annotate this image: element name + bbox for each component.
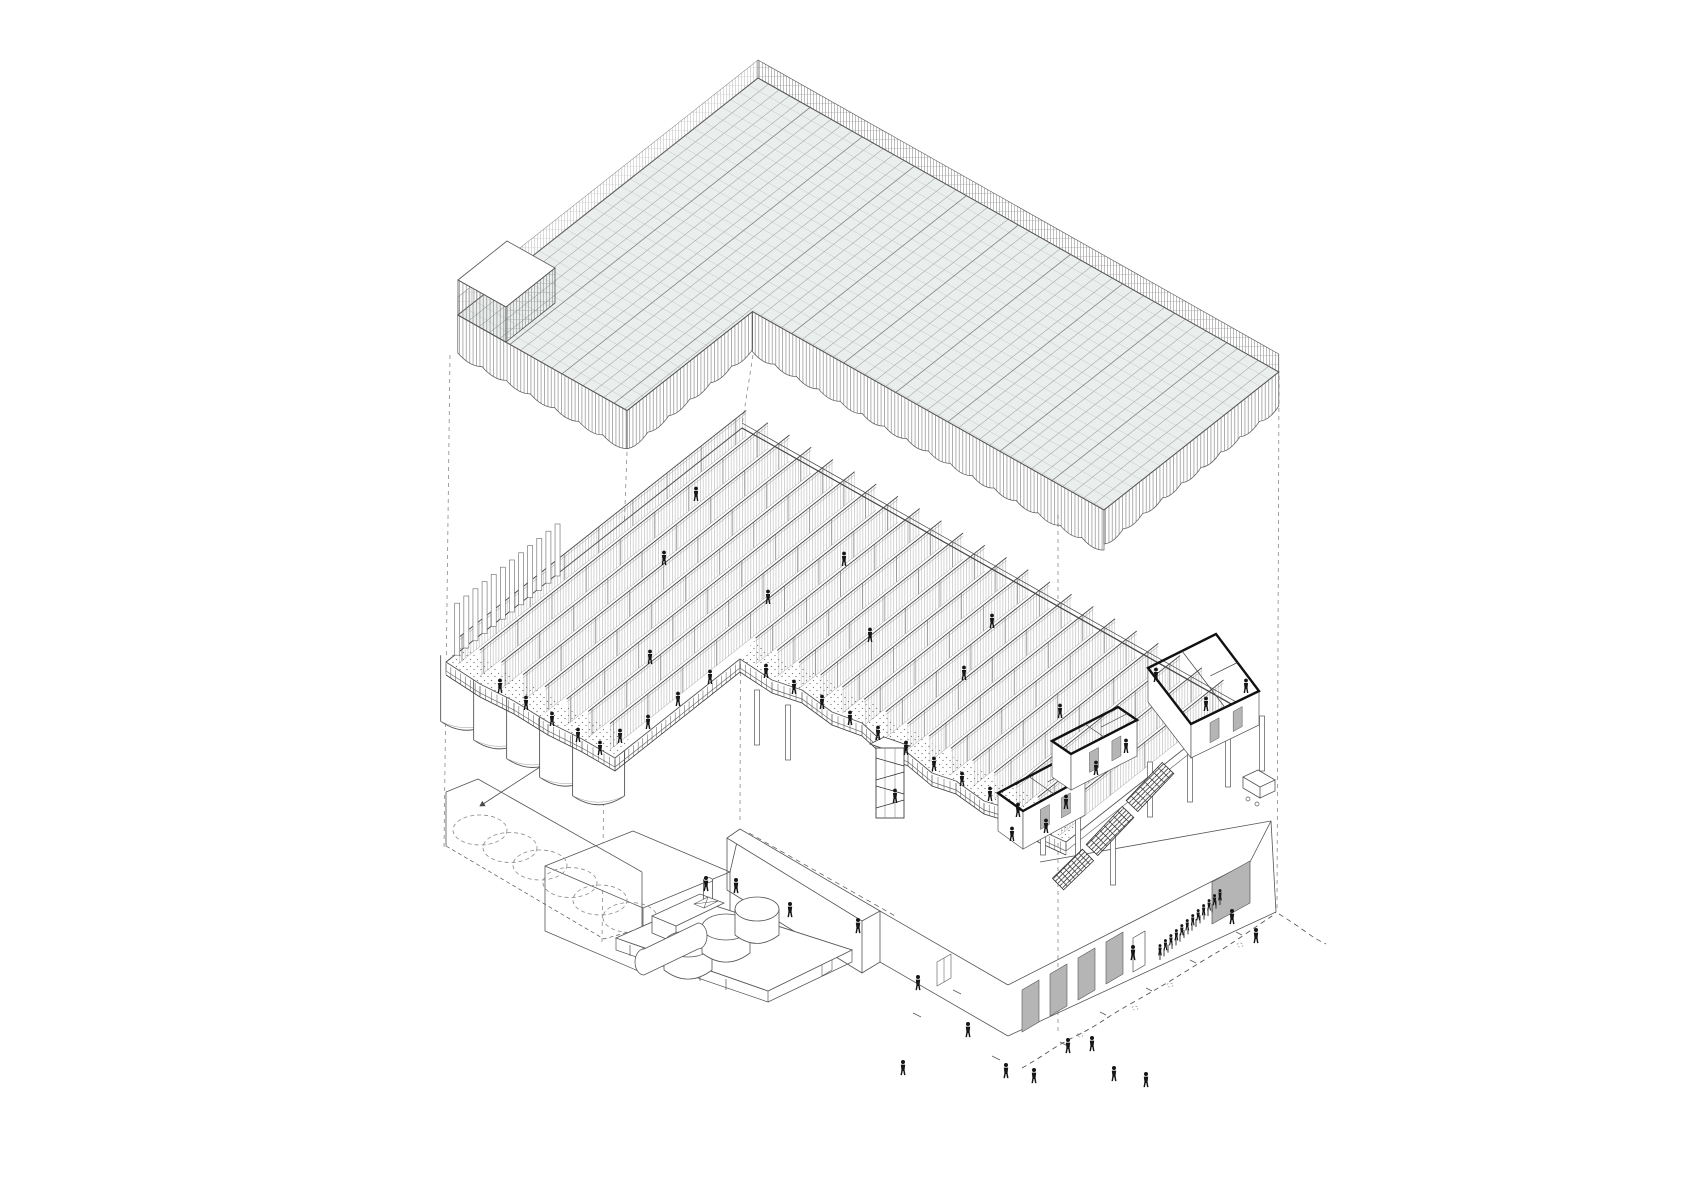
tall-slat (555, 524, 560, 576)
tall-slat (528, 546, 533, 598)
projection-dashed-line (444, 355, 450, 848)
projection-dashed-line (1277, 376, 1279, 908)
exploded-axonometric-svg (0, 0, 1684, 1191)
base-building-edge (1279, 914, 1326, 944)
gridshell-canopy-group (458, 60, 1279, 550)
storage-tank-top (735, 897, 779, 921)
truck (1243, 770, 1275, 798)
base-building-edge (913, 990, 1000, 1060)
person-figure (965, 1022, 970, 1037)
person-figure (915, 975, 920, 990)
person-figure (1111, 1066, 1116, 1081)
person-figure (1143, 1072, 1148, 1087)
tall-slat (455, 603, 460, 655)
gray-door-panel (1078, 948, 1095, 1000)
ground-mark (1167, 983, 1173, 987)
silo-footprint-dashed-circle (483, 833, 537, 863)
gray-door-panel (1050, 964, 1067, 1016)
person-figure (792, 680, 797, 694)
tall-slat (473, 589, 478, 641)
slender-column (1260, 716, 1265, 771)
gray-door-panel (1106, 932, 1123, 984)
base-building-edge (1008, 862, 1250, 985)
tall-slat (491, 574, 496, 626)
person-figure (855, 918, 860, 933)
person-figure (1229, 909, 1234, 924)
silo-footprint-dashed-circle (453, 815, 507, 845)
tall-slat (519, 553, 524, 605)
truck-wheel (1246, 797, 1250, 801)
truck-wheel (1255, 802, 1259, 806)
person-figure (703, 876, 708, 891)
person-figure (900, 1060, 905, 1075)
tall-slat (509, 560, 514, 612)
ground-mark (1237, 943, 1243, 947)
tall-slat (537, 538, 542, 590)
person-figure (787, 902, 792, 917)
base-building-edge (1008, 912, 1276, 1036)
person-figure (1164, 939, 1168, 950)
person-figure (1191, 914, 1195, 925)
person-figure (904, 741, 909, 755)
person-figure (733, 878, 738, 893)
person-figure (1089, 1036, 1094, 1051)
gray-door-panel (1022, 980, 1039, 1032)
person-figure (1003, 1063, 1008, 1078)
tall-slat (482, 582, 487, 634)
person-figure (1207, 899, 1211, 910)
stair-tower (876, 748, 904, 818)
person-figure (1196, 909, 1200, 920)
axonometric-drawing-canvas (0, 0, 1684, 1191)
person-figure (1185, 919, 1189, 930)
person-figure (1169, 934, 1173, 945)
person-figure (1065, 1038, 1070, 1053)
tall-slat (546, 531, 551, 583)
base-building-edge (1250, 821, 1276, 912)
person-figure (1180, 924, 1184, 935)
slender-column (755, 690, 760, 745)
tall-slat (464, 596, 469, 648)
tall-slat (500, 567, 505, 619)
slender-column (786, 705, 791, 760)
person-figure (1031, 1068, 1036, 1083)
person-figure (1253, 928, 1258, 943)
base-building-edge (862, 911, 880, 973)
person-figure (1244, 679, 1249, 693)
ground-mark (1132, 1006, 1138, 1010)
